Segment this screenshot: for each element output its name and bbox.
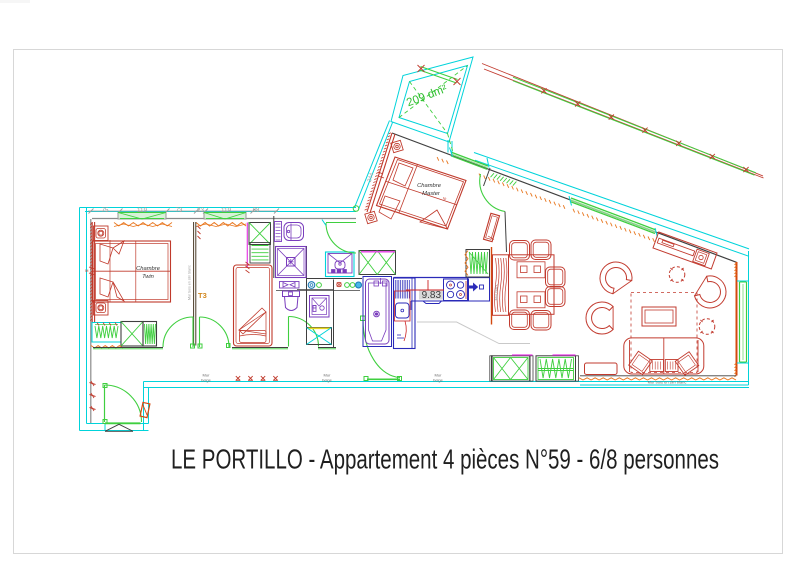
svg-text:LE PORTILLO - Appartement 4 pi: LE PORTILLO - Appartement 4 pièces N°59 … — [171, 444, 719, 475]
svg-text:Mur blanc: Mur blanc — [495, 284, 499, 301]
svg-text:Twin: Twin — [142, 274, 154, 280]
svg-text:73: 73 — [175, 207, 183, 214]
svg-text:23: 23 — [197, 207, 205, 214]
svg-text:T3: T3 — [198, 291, 207, 300]
svg-text:M: M — [85, 268, 88, 273]
svg-text:75: 75 — [101, 207, 109, 214]
svg-text:Mur bois en slin blanc: Mur bois en slin blanc — [188, 265, 192, 300]
svg-text:beige: beige — [201, 378, 212, 383]
svg-text:beige: beige — [322, 378, 333, 383]
svg-text:beige: beige — [433, 378, 444, 383]
svg-text:Mur bois en slin blanc: Mur bois en slin blanc — [648, 380, 687, 385]
svg-text:9.83: 9.83 — [422, 290, 442, 301]
svg-text:Chambre: Chambre — [136, 266, 161, 272]
svg-text:58: 58 — [252, 207, 260, 214]
svg-text:Master: Master — [422, 191, 441, 197]
svg-text:Chambre: Chambre — [417, 183, 442, 189]
